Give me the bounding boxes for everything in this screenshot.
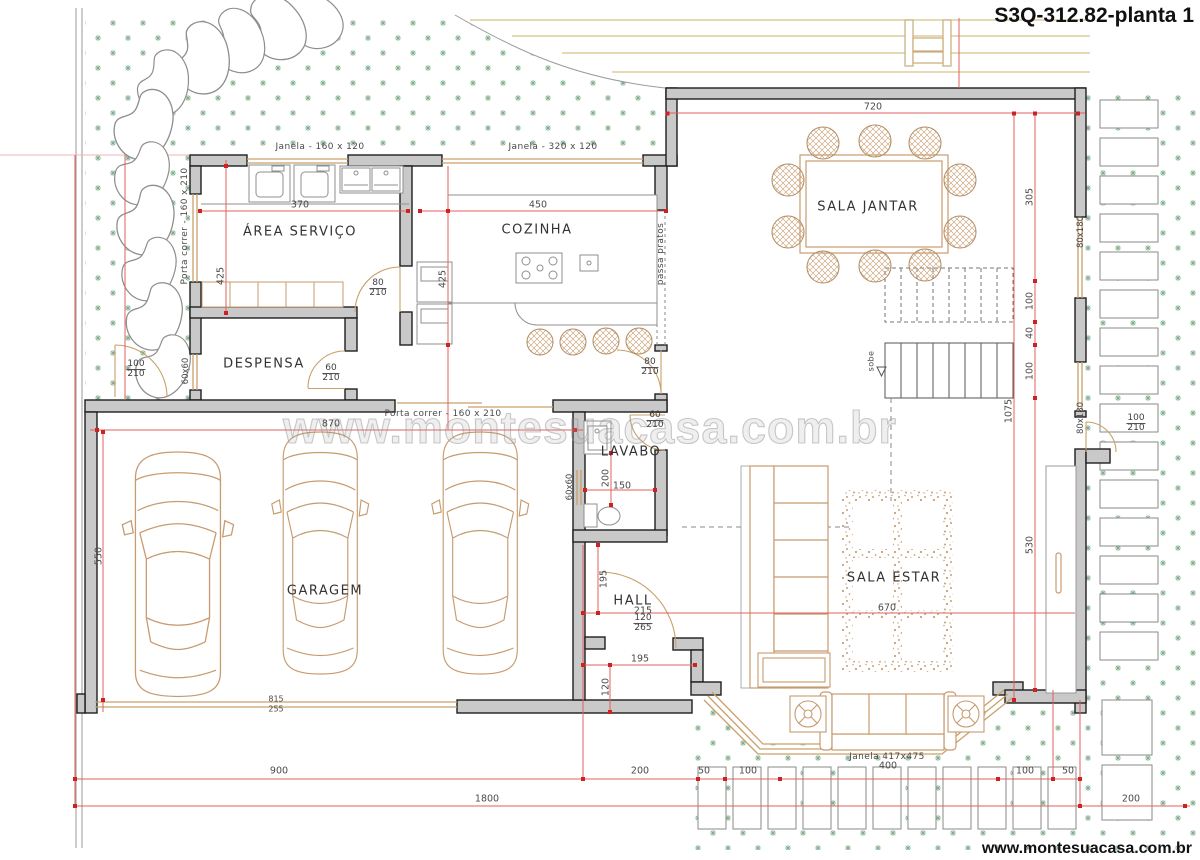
window-label-janela-320x120: Janela - 320 x 120 [509, 142, 598, 152]
dim-200-terrace: 200 [631, 766, 649, 777]
door-tag-60-210-lavabo: 60210 [646, 411, 663, 431]
dim-100-stairs-b: 100 [1025, 362, 1036, 380]
room-label-sala-jantar: SALA JANTAR [817, 200, 919, 215]
dim-150: 150 [613, 481, 631, 492]
dim-425-servico: 425 [216, 267, 227, 285]
room-label-area-servico: ÁREA SERVIÇO [243, 225, 357, 240]
dim-450: 450 [529, 200, 547, 211]
plan-labels-layer: ÁREA SERVIÇOCOZINHADESPENSASALA JANTARGA… [0, 0, 1200, 860]
dim-400: 400 [879, 761, 897, 772]
dim-670: 670 [878, 603, 896, 614]
window-label-janela-160x120: Janela - 160 x 120 [276, 142, 365, 152]
dim-50-left: 50 [698, 766, 710, 777]
door-tag-100-210-garden: 100210 [126, 360, 145, 380]
dim-1800: 1800 [475, 794, 499, 805]
door-tag-80-210-cozinha: 80210 [641, 358, 658, 378]
door-tag-80-210-servico: 80210 [369, 279, 386, 299]
dim-100-stairs-a: 100 [1025, 292, 1036, 310]
dim-900: 900 [270, 766, 288, 777]
dim-100-left: 100 [739, 766, 757, 777]
dim-550: 550 [94, 547, 105, 565]
door-label-porta-correr-garagem: Porta correr - 160 x 210 [385, 409, 502, 419]
dim-100-right: 100 [1016, 766, 1034, 777]
dim-195-hall: 195 [631, 654, 649, 665]
window-tag-60x60-lavabo: 60x60 [565, 474, 575, 501]
stairs-up-label: sobe [867, 351, 876, 372]
door-tag-120-265-hall: 120265 [633, 614, 652, 634]
dim-870: 870 [322, 419, 340, 430]
room-label-lavabo: LAVABO [601, 445, 661, 460]
floor-plan-page: www.montesuacasa.com.br ÁREA SERVIÇOCOZI… [0, 0, 1200, 860]
dim-425-cozinha: 425 [438, 270, 449, 288]
window-tag-60x60-despensa: 60x60 [181, 358, 191, 385]
dim-255: 255 [268, 705, 283, 714]
dim-1075: 1075 [1004, 399, 1015, 423]
room-label-despensa: DESPENSA [223, 357, 305, 372]
dim-40: 40 [1025, 327, 1036, 339]
door-tag-100-210-right: 100210 [1126, 414, 1145, 434]
window-tag-80x180-top: 80x180 [1076, 216, 1086, 248]
door-label-porta-correr-left: Porta correr - 160 x 210 [180, 168, 190, 285]
dim-200-lavabo: 200 [601, 469, 612, 487]
pass-through-label: passa pratos [656, 223, 666, 285]
room-label-sala-estar: SALA ESTAR [847, 571, 941, 586]
dim-120-hall: 120 [601, 678, 612, 696]
window-tag-80x180-bottom: 80x180 [1076, 402, 1086, 434]
room-label-garagem: GARAGEM [287, 584, 363, 599]
dim-305: 305 [1025, 188, 1036, 206]
dim-50-right: 50 [1062, 766, 1074, 777]
dim-195-hall-v: 195 [599, 570, 610, 588]
room-label-cozinha: COZINHA [502, 223, 573, 238]
door-tag-60-210-despensa: 60210 [322, 364, 339, 384]
dim-815: 815 [268, 695, 283, 704]
dim-720: 720 [864, 102, 882, 113]
dim-370: 370 [291, 200, 309, 211]
dim-530: 530 [1025, 536, 1036, 554]
dim-200-lot: 200 [1122, 794, 1140, 805]
